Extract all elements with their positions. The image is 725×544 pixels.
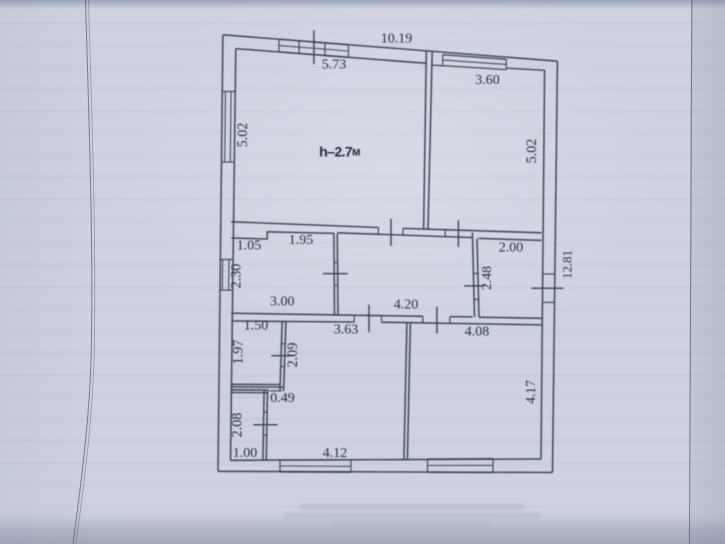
svg-text:2.30: 2.30 bbox=[228, 264, 244, 289]
svg-text:4.17: 4.17 bbox=[523, 380, 538, 404]
svg-text:5.02: 5.02 bbox=[235, 123, 251, 148]
svg-text:1.95: 1.95 bbox=[289, 233, 314, 248]
svg-text:2.09: 2.09 bbox=[285, 343, 301, 368]
svg-text:10.19: 10.19 bbox=[381, 32, 413, 47]
svg-text:3.00: 3.00 bbox=[270, 295, 295, 310]
svg-text:4.20: 4.20 bbox=[394, 298, 419, 313]
svg-text:4.12: 4.12 bbox=[323, 446, 348, 461]
svg-text:2.48: 2.48 bbox=[479, 266, 494, 290]
svg-text:1.00: 1.00 bbox=[233, 446, 258, 461]
svg-text:1.50: 1.50 bbox=[244, 319, 269, 334]
svg-text:1.97: 1.97 bbox=[230, 340, 246, 365]
svg-text:4.08: 4.08 bbox=[465, 325, 490, 340]
svg-text:3.63: 3.63 bbox=[334, 323, 359, 338]
svg-text:5.73: 5.73 bbox=[322, 58, 347, 73]
svg-text:0.49: 0.49 bbox=[270, 391, 295, 406]
svg-text:5.02: 5.02 bbox=[524, 139, 540, 164]
svg-text:2.08: 2.08 bbox=[229, 413, 245, 438]
svg-text:2.00: 2.00 bbox=[499, 241, 524, 256]
svg-text:12.81: 12.81 bbox=[561, 250, 575, 279]
svg-text:1.05: 1.05 bbox=[237, 239, 262, 254]
svg-text:3.60: 3.60 bbox=[475, 73, 500, 88]
svg-text:h–2.7м: h–2.7м bbox=[319, 144, 360, 160]
